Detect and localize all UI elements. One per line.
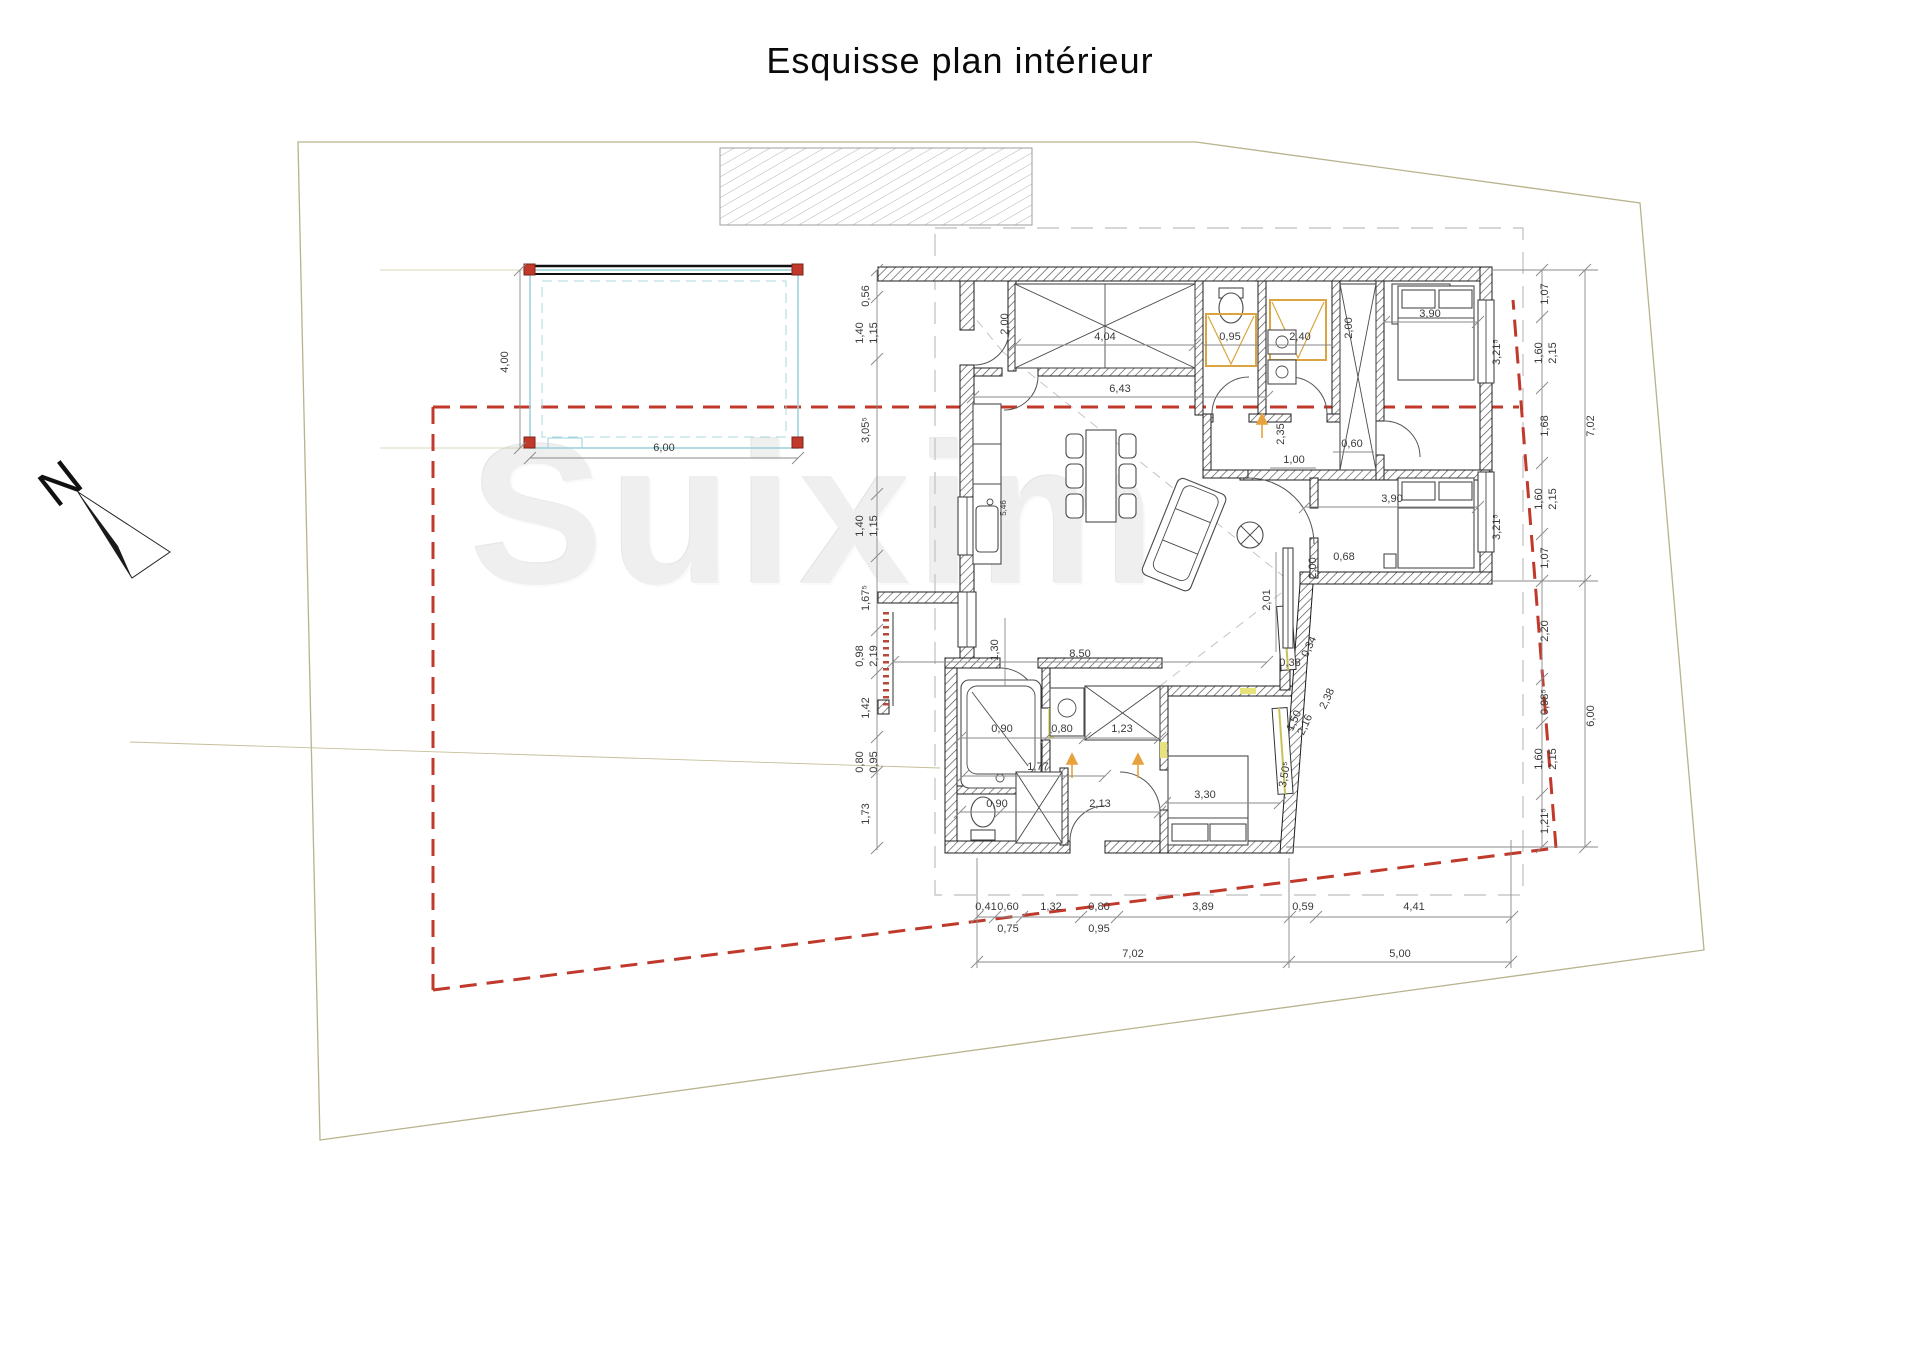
terrace-railing xyxy=(886,612,893,706)
dimension-labels: 0,561,401,153,05⁵1,401,151,67⁵0,982,191,… xyxy=(499,283,1597,960)
dimension-label: 0,80 xyxy=(1051,723,1072,735)
carport xyxy=(524,264,803,448)
dimension-label: 4,04 xyxy=(1094,331,1115,343)
dimension-label: 3,89 xyxy=(1192,901,1213,913)
dimension-label: 2,15 xyxy=(1547,488,1559,509)
dimension-label: 0,90 xyxy=(991,723,1012,735)
dimension-label: 0,95 xyxy=(868,751,880,772)
dimension-label: 1,77 xyxy=(1027,761,1048,773)
dimension-label: 1,15 xyxy=(868,322,880,343)
dimension-label: 3,30 xyxy=(1194,789,1215,801)
wardrobe-hall xyxy=(1016,772,1062,843)
dimension-label: 6,43 xyxy=(1109,383,1130,395)
dimension-label: 0,41 xyxy=(975,901,996,913)
dimension-label: 6,00 xyxy=(653,442,674,454)
dimension-label: 3,05⁵ xyxy=(860,417,872,443)
dimension-label: 0,98 xyxy=(854,645,866,666)
dimension-label: 1,60 xyxy=(1533,488,1545,509)
kitchen-sink-icon xyxy=(976,506,998,552)
bed-double xyxy=(1398,286,1474,380)
dimension-label: 0,98⁵ xyxy=(1539,689,1551,715)
dimension-label: 1,00 xyxy=(1283,454,1304,466)
dimension-label: 0,95 xyxy=(1219,331,1240,343)
ceiling-light-icon xyxy=(1237,522,1263,548)
dimension-label: 1,40 xyxy=(854,322,866,343)
dimension-label: 7,02 xyxy=(1585,415,1597,436)
dimension-label: 1,60 xyxy=(1533,748,1545,769)
dimension-label: 2,40 xyxy=(1289,331,1310,343)
dimension-label: 0,80 xyxy=(1088,901,1109,913)
dimension-label: 0,80 xyxy=(854,751,866,772)
dimension-label: 3,21⁵ xyxy=(1491,339,1503,365)
bed-double xyxy=(1384,478,1474,568)
dimension-label: 2,00 xyxy=(1307,557,1319,578)
dimension-label: 0,56 xyxy=(860,285,872,306)
north-label: N xyxy=(28,450,93,519)
sofa xyxy=(1140,477,1227,593)
dimension-label: 1,68 xyxy=(1539,415,1551,436)
dimension-label: 0,90 xyxy=(986,798,1007,810)
dimension-label: 7,02 xyxy=(1122,948,1143,960)
dimension-label: 2,15 xyxy=(1547,342,1559,363)
dimension-label: 0,95 xyxy=(1088,923,1109,935)
dimension-label: 2,15 xyxy=(1547,748,1559,769)
dimension-label: 1,42 xyxy=(860,697,872,718)
dimension-label: 2,38 xyxy=(1317,686,1337,710)
dimension-label: 4,41 xyxy=(1403,901,1424,913)
dimension-label: 4,00 xyxy=(499,351,511,372)
dimension-label: 2,13 xyxy=(1089,798,1110,810)
carport-post xyxy=(792,264,803,275)
floor-plan-page: Suixim N xyxy=(0,0,1920,1358)
dimension-label: 2,19 xyxy=(868,645,880,666)
carport-post xyxy=(792,437,803,448)
dimension-label: 5,00 xyxy=(1389,948,1410,960)
dimension-label: 8,50 xyxy=(1069,648,1090,660)
north-arrow-icon: N xyxy=(28,450,170,578)
dimension-label: 1,21⁵ xyxy=(1539,808,1551,834)
dimension-label: 2,20 xyxy=(1539,620,1551,641)
dimension-label: 0,68 xyxy=(1333,551,1354,563)
wardrobe-entry xyxy=(1015,284,1195,368)
dimension-label: 1,32 xyxy=(1040,901,1061,913)
dimension-label: 5,46 xyxy=(999,500,1008,516)
dimension-label: 3,90 xyxy=(1381,493,1402,505)
dimension-label: 1,15 xyxy=(868,515,880,536)
dimension-label: 2,00 xyxy=(1343,317,1355,338)
dimension-label: 0,38 xyxy=(1279,657,1300,669)
carport-post xyxy=(524,264,535,275)
dimension-label: 1,73 xyxy=(860,803,872,824)
toilet-icon xyxy=(1219,288,1243,323)
dimension-label: 0,60 xyxy=(997,901,1018,913)
dimension-label: 0,59 xyxy=(1292,901,1313,913)
dimension-label: 2,00 xyxy=(999,313,1011,334)
dimension-label: 2,01 xyxy=(1261,589,1273,610)
dimension-label: 2,35 xyxy=(1275,423,1287,444)
dimension-label: 6,00 xyxy=(1585,705,1597,726)
dimension-label: 1,40 xyxy=(854,515,866,536)
dimension-label: 0,75 xyxy=(997,923,1018,935)
dining-table xyxy=(1066,430,1136,522)
dimension-label: 1,30 xyxy=(989,639,1001,660)
dimension-label: 3,90 xyxy=(1419,308,1440,320)
kitchen-counter xyxy=(973,404,1001,564)
dimension-label: 1,23 xyxy=(1111,723,1132,735)
dimension-label: 3,21⁵ xyxy=(1491,514,1503,540)
hatched-roof-strip xyxy=(720,148,1032,225)
page-title: Esquisse plan intérieur xyxy=(0,40,1920,82)
dimension-label: 1,07 xyxy=(1539,283,1551,304)
dimension-label: 1,60 xyxy=(1533,342,1545,363)
floor-plan-drawing: N xyxy=(0,0,1920,1358)
dimension-label: 1,07 xyxy=(1539,547,1551,568)
dimension-label: 0,60 xyxy=(1341,438,1362,450)
dimension-label: 1,67⁵ xyxy=(860,585,872,611)
